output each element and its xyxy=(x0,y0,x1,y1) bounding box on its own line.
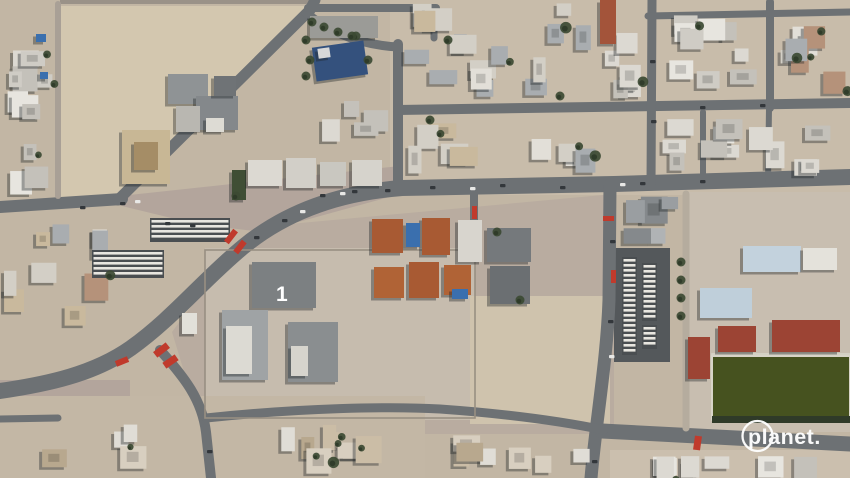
planet-logo-text: planet. xyxy=(748,425,821,449)
screenshot-root: 1 planet. xyxy=(0,0,850,478)
sports-field-layer xyxy=(712,356,850,423)
satellite-image: 1 planet. xyxy=(0,0,850,478)
compound-number-marking: 1 xyxy=(276,283,288,306)
planet-logo: planet. xyxy=(743,421,821,451)
